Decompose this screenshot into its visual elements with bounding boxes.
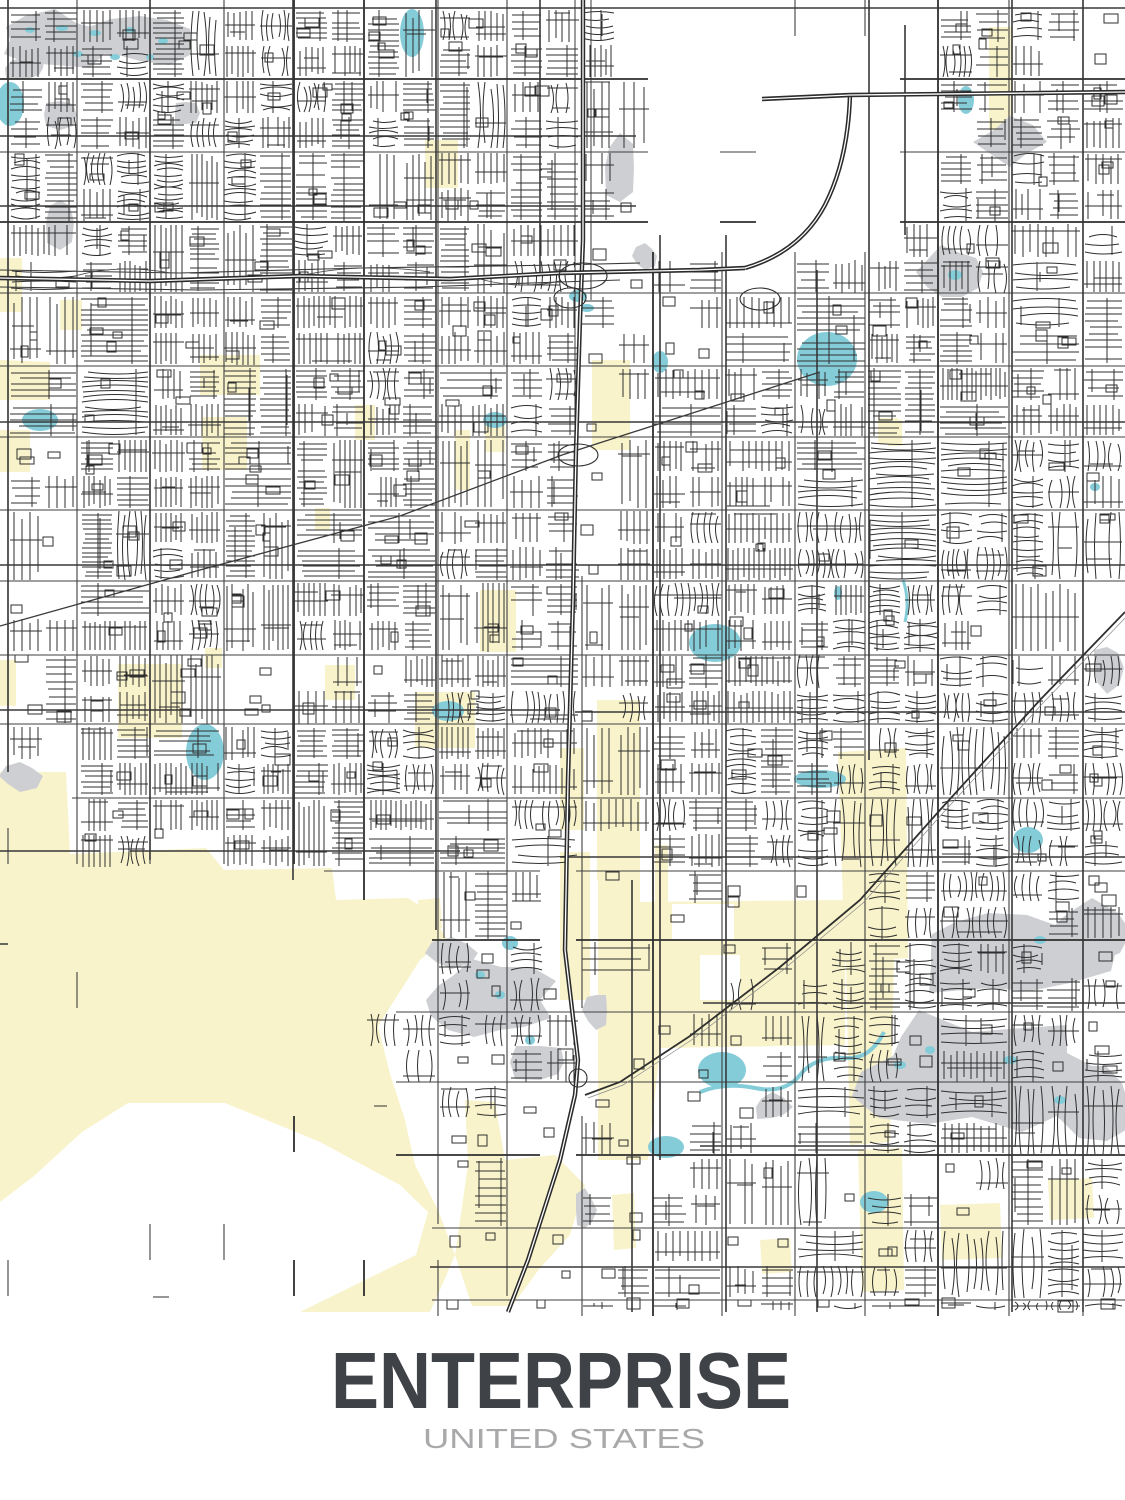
- svg-text:ENTERPRISE: ENTERPRISE: [331, 1336, 791, 1425]
- svg-text:UNITED STATES: UNITED STATES: [423, 1423, 705, 1454]
